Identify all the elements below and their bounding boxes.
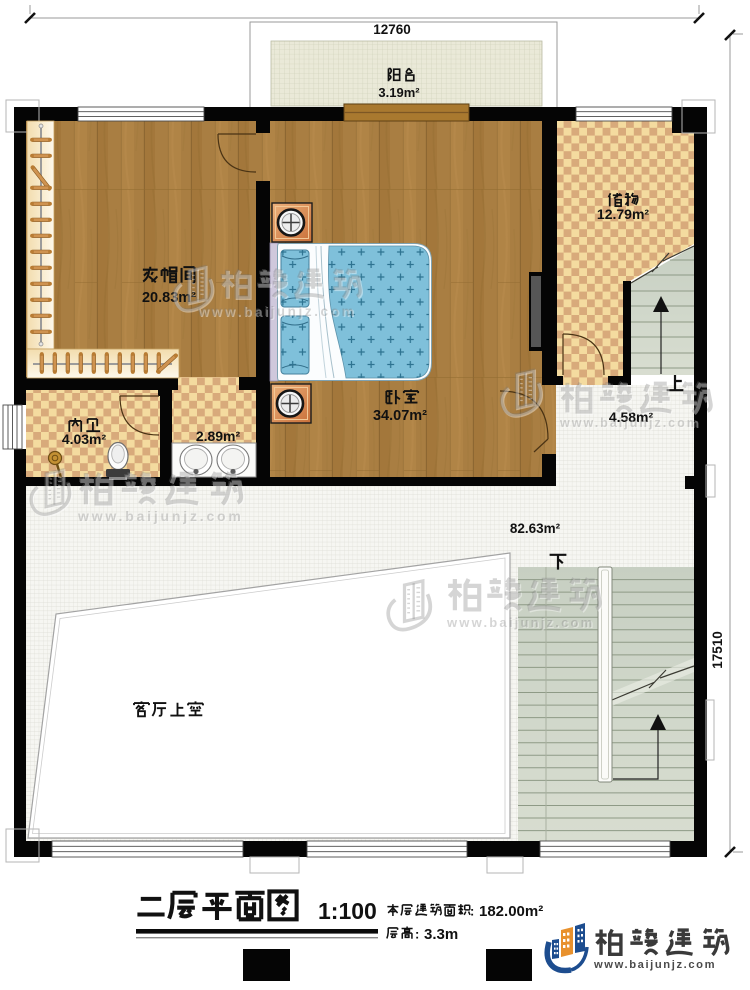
svg-text:www.baijunjz.com: www.baijunjz.com	[446, 615, 594, 630]
svg-text:12760: 12760	[373, 22, 411, 37]
svg-text:3.19m²: 3.19m²	[378, 85, 420, 100]
svg-text::: :	[470, 904, 474, 919]
svg-text:2.89m²: 2.89m²	[196, 428, 241, 444]
svg-text:www.baijunjz.com: www.baijunjz.com	[77, 508, 244, 524]
svg-text:82.63m²: 82.63m²	[510, 521, 561, 536]
svg-text:17510: 17510	[710, 631, 725, 669]
svg-text:www.baijunjz.com: www.baijunjz.com	[197, 304, 356, 319]
svg-text:www.baijunjz.com: www.baijunjz.com	[593, 959, 716, 971]
svg-text:1:100: 1:100	[318, 898, 377, 924]
svg-text:www.baijunjz.com: www.baijunjz.com	[559, 416, 700, 430]
svg-text:12.79m²: 12.79m²	[597, 206, 649, 222]
svg-text:3.3m: 3.3m	[424, 926, 458, 943]
svg-text:182.00m²: 182.00m²	[479, 903, 543, 920]
svg-text:34.07m²: 34.07m²	[373, 408, 427, 424]
svg-text:4.03m²: 4.03m²	[62, 431, 107, 447]
svg-text::: :	[415, 927, 419, 942]
